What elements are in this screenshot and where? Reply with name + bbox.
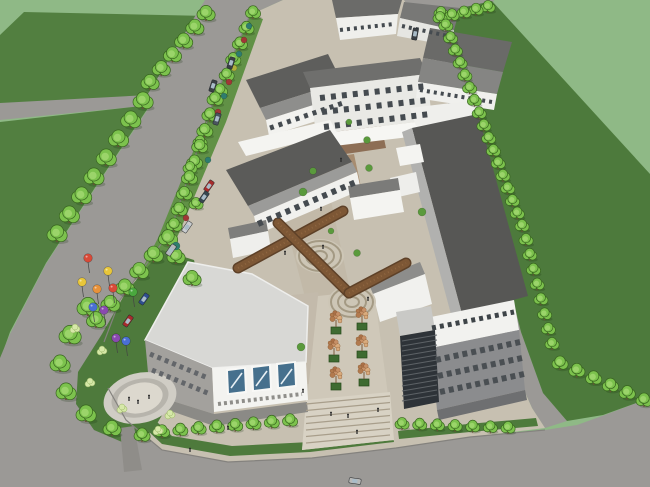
balloon-highlight [91, 305, 93, 307]
tree-highlight [106, 299, 113, 306]
tree-highlight [114, 134, 122, 142]
tree-highlight [473, 6, 478, 11]
tree-highlight [81, 409, 89, 417]
balloon-body [84, 254, 93, 263]
autumn-foliage [338, 375, 342, 379]
autumn-foliage [330, 369, 334, 373]
tree-highlight [149, 250, 156, 257]
autumn-foliage [334, 340, 338, 344]
tree-highlight [519, 222, 524, 227]
autumn-foliage [356, 340, 361, 345]
person-head [148, 395, 150, 397]
tree-highlight [447, 34, 452, 39]
shrub-icon [183, 215, 189, 221]
tree-highlight [232, 421, 238, 427]
tree-highlight [177, 426, 183, 432]
tree-highlight [523, 236, 528, 241]
balloon-body [89, 303, 98, 312]
shrub-icon [297, 343, 305, 351]
tree-highlight [437, 14, 442, 19]
tree-highlight [193, 200, 198, 205]
tree-planter [357, 323, 367, 330]
autumn-foliage [330, 316, 335, 321]
tree-highlight [526, 251, 531, 256]
autumn-foliage [336, 312, 340, 316]
tree-highlight [607, 381, 613, 387]
person-head [302, 389, 304, 391]
tree-highlight [286, 417, 292, 423]
shrub-icon [221, 93, 227, 99]
tree-highlight [64, 210, 72, 218]
tree-highlight [120, 282, 127, 289]
tree-highlight [126, 115, 134, 123]
tree-highlight [216, 87, 222, 93]
balloon-body [93, 285, 102, 294]
tree-highlight [89, 172, 97, 180]
autumn-foliage [364, 315, 368, 319]
entry-steps [302, 392, 394, 450]
tree-highlight [55, 359, 63, 367]
tree-highlight [223, 71, 229, 77]
tree-highlight [545, 325, 550, 330]
tree-highlight [573, 366, 579, 372]
tree-planter [329, 355, 339, 362]
balloon-highlight [111, 286, 113, 288]
tree-highlight [146, 78, 153, 85]
tree-highlight [195, 424, 201, 430]
autumn-foliage [362, 308, 366, 312]
balloon-highlight [114, 336, 116, 338]
tree-highlight [172, 252, 179, 259]
tree-highlight [534, 281, 539, 286]
tree-highlight [476, 109, 481, 114]
autumn-foliage [336, 368, 340, 372]
tree-highlight [201, 126, 207, 132]
shrub-icon [246, 23, 252, 29]
tree-highlight [190, 23, 197, 30]
balloon-highlight [124, 339, 126, 341]
tree-highlight [52, 229, 60, 237]
tree-planter [359, 379, 369, 386]
balloon-body [122, 337, 131, 346]
tree-highlight [416, 421, 421, 426]
person-head [340, 158, 342, 160]
tree-highlight [556, 359, 562, 365]
shrub-icon [241, 37, 247, 43]
tree-highlight [180, 189, 186, 195]
tree-highlight [268, 418, 274, 424]
tree-highlight [495, 159, 500, 164]
person-head [367, 297, 369, 299]
autumn-foliage [362, 336, 366, 340]
tree-highlight [514, 210, 519, 215]
autumn-foliage [336, 347, 340, 351]
person-head [356, 430, 358, 432]
tree-highlight [135, 266, 142, 273]
person-head [189, 448, 191, 450]
tree-highlight [485, 3, 490, 8]
tree-highlight [549, 340, 554, 345]
person-head [377, 408, 379, 410]
person-head [284, 251, 286, 253]
shrub-icon [236, 51, 242, 57]
tree-highlight [187, 164, 192, 169]
tree-highlight [399, 420, 404, 425]
autumn-foliage [364, 364, 368, 368]
autumn-foliage [356, 309, 360, 313]
shrub-icon [366, 165, 373, 172]
autumn-foliage [358, 365, 362, 369]
person-head [137, 400, 139, 402]
tree-highlight [249, 9, 255, 15]
tree-highlight [61, 387, 69, 395]
tree-highlight [138, 431, 144, 437]
tree-highlight [196, 142, 202, 148]
tree-highlight [168, 50, 175, 57]
tree-highlight [461, 72, 466, 77]
autumn-foliage [364, 343, 368, 347]
tree-highlight [485, 134, 490, 139]
bldg-se-box-1 [396, 144, 424, 166]
balloon-body [78, 278, 87, 287]
balloon-highlight [102, 308, 104, 310]
tree-highlight [434, 421, 439, 426]
blossom-cluster [87, 378, 93, 384]
tree-highlight [537, 296, 542, 301]
balloon-body [129, 288, 138, 297]
autumn-foliage [328, 344, 333, 349]
tree-highlight [108, 424, 115, 431]
tree-highlight [640, 396, 646, 402]
tree-highlight [471, 97, 476, 102]
shrub-icon [418, 208, 426, 216]
autumn-foliage [330, 313, 334, 317]
tree-highlight [449, 11, 454, 16]
tree-highlight [530, 266, 535, 271]
shrub-icon [299, 188, 307, 196]
tree-planter [331, 383, 341, 390]
tree-highlight [481, 122, 486, 127]
tree-highlight [504, 185, 509, 190]
tree-highlight [487, 423, 492, 428]
tree-highlight [505, 424, 510, 429]
autumn-foliage [338, 319, 342, 323]
tree-highlight [202, 9, 209, 16]
balloon-highlight [106, 269, 108, 271]
balloon-body [112, 334, 121, 343]
blossom-cluster [155, 426, 161, 432]
balloon-highlight [80, 280, 82, 282]
campus-aerial-rendering [0, 0, 650, 487]
tree-highlight [500, 172, 505, 177]
tree-highlight [250, 420, 256, 426]
autumn-foliage [330, 372, 335, 377]
balloon-highlight [95, 287, 97, 289]
blossom-cluster [167, 410, 173, 416]
shrub-icon [226, 79, 232, 85]
tree-highlight [466, 84, 471, 89]
person-head [322, 245, 324, 247]
tree-highlight [211, 95, 217, 101]
balloon-body [104, 267, 113, 276]
tree-highlight [170, 221, 176, 227]
tree-planter [357, 351, 367, 358]
tree-highlight [175, 205, 181, 211]
tree-highlight [101, 153, 109, 161]
balloon-highlight [131, 290, 133, 292]
person-head [227, 426, 229, 428]
tree-highlight [138, 96, 146, 104]
balloon-body [100, 306, 109, 315]
autumn-foliage [356, 312, 361, 317]
shrub-icon [364, 137, 371, 144]
tree-highlight [179, 36, 186, 43]
architectural-rendering-viewport [0, 0, 650, 487]
tree-highlight [452, 422, 457, 427]
autumn-foliage [366, 371, 370, 375]
blossom-cluster [119, 404, 125, 410]
tree-highlight [206, 111, 212, 117]
person-head [347, 414, 349, 416]
shrub-icon [205, 157, 211, 163]
car-windshield [352, 479, 358, 483]
tree-highlight [163, 233, 170, 240]
tree-highlight [461, 9, 466, 14]
tree-highlight [457, 59, 462, 64]
tree-highlight [213, 423, 219, 429]
balloon-highlight [86, 256, 88, 258]
tree-highlight [157, 64, 164, 71]
tree-highlight [442, 22, 447, 27]
tree-highlight [469, 423, 474, 428]
blossom-cluster [99, 346, 105, 352]
tree-highlight [541, 310, 546, 315]
shrub-icon [354, 250, 361, 257]
blossom-cluster [72, 324, 78, 330]
autumn-foliage [356, 337, 360, 341]
tree-highlight [623, 389, 629, 395]
tree-highlight [452, 47, 457, 52]
shrub-icon [310, 168, 317, 175]
autumn-foliage [358, 368, 363, 373]
tree-planter [331, 327, 341, 334]
tree-highlight [91, 315, 98, 322]
shrub-icon [328, 228, 334, 234]
tree-highlight [590, 374, 596, 380]
person-head [330, 412, 332, 414]
person-head [128, 397, 130, 399]
tree-highlight [490, 147, 495, 152]
shrub-icon [346, 119, 352, 125]
balloon-body [109, 284, 118, 293]
tree-highlight [188, 274, 195, 281]
tree-highlight [77, 191, 85, 199]
glass-tower-curtainwall [400, 330, 439, 409]
tree-highlight [509, 197, 514, 202]
autumn-foliage [328, 341, 332, 345]
tree-highlight [186, 174, 192, 180]
person-head [320, 207, 322, 209]
